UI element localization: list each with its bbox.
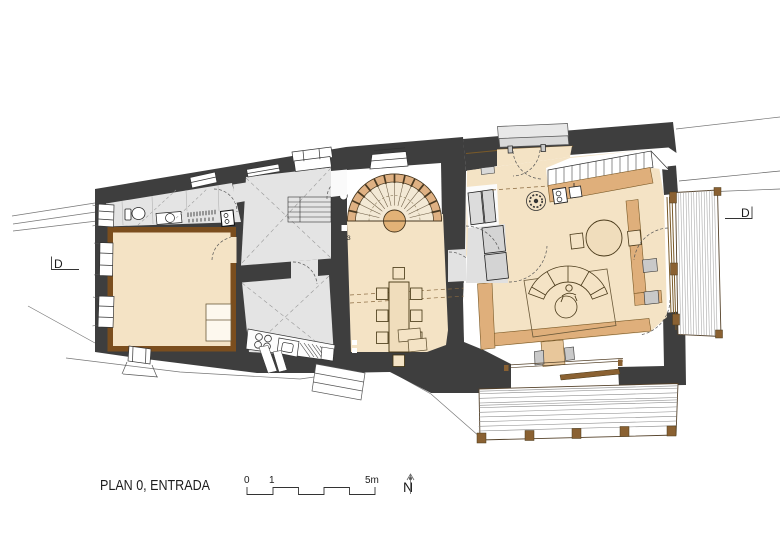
svg-text:PLAN 0, ENTRADA: PLAN 0, ENTRADA bbox=[100, 477, 210, 494]
svg-text:1: 1 bbox=[269, 475, 275, 486]
svg-text:3: 3 bbox=[347, 235, 351, 242]
svg-text:D: D bbox=[54, 257, 63, 271]
svg-text:5m: 5m bbox=[365, 475, 379, 486]
svg-text:0: 0 bbox=[244, 475, 250, 486]
svg-text:D: D bbox=[741, 206, 750, 220]
svg-text:N: N bbox=[403, 479, 413, 495]
